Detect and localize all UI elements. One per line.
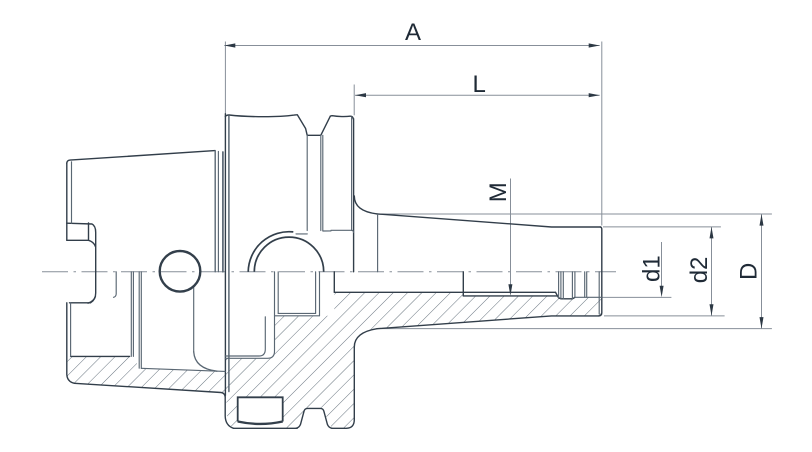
svg-text:d1: d1 (638, 255, 665, 282)
svg-text:d2: d2 (686, 257, 713, 284)
svg-text:M: M (485, 182, 512, 202)
svg-text:L: L (473, 71, 486, 98)
svg-text:D: D (736, 263, 763, 280)
svg-text:A: A (405, 19, 421, 46)
